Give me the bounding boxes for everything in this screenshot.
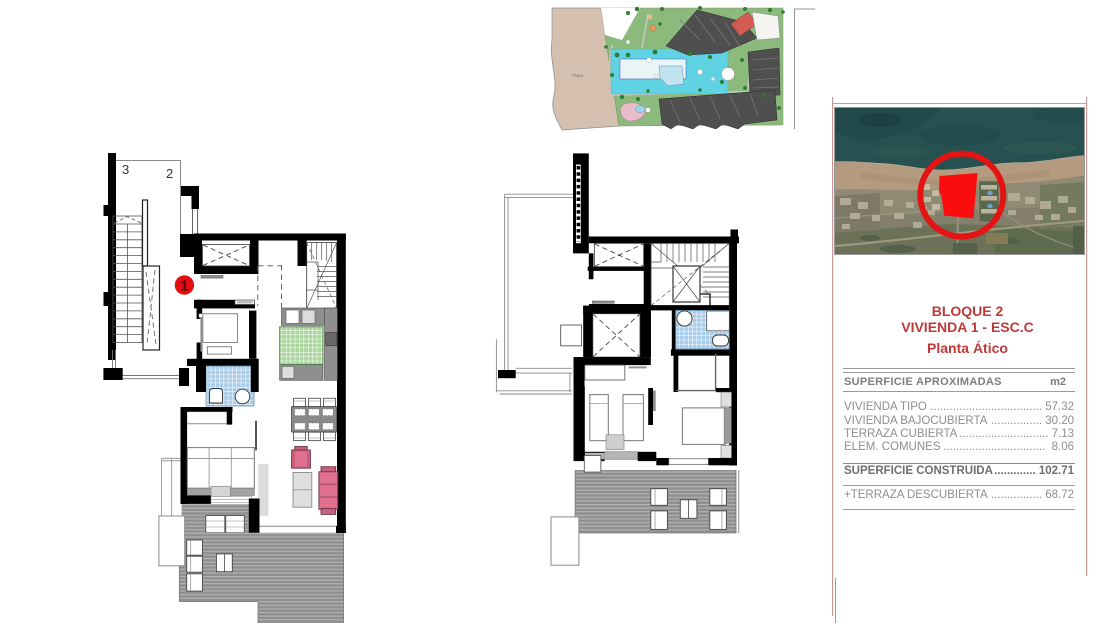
svg-text:2: 2 <box>166 166 173 181</box>
svg-text:1: 1 <box>180 278 188 294</box>
svg-text:3: 3 <box>122 162 129 177</box>
svg-text:Playa: Playa <box>572 73 584 78</box>
